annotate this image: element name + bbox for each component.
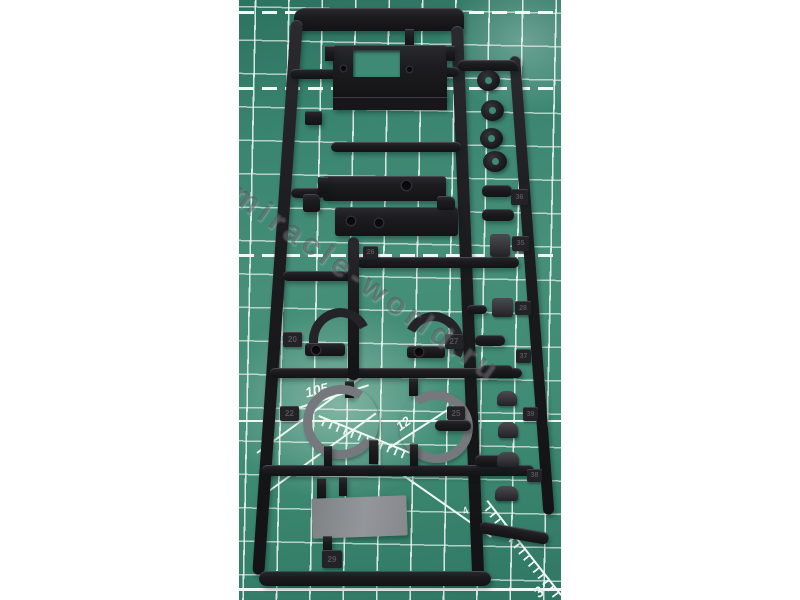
sprue-top-label-bar: [294, 8, 464, 31]
photo-of-sprue-on-cutting-mat: 105 12 4 3: [239, 0, 561, 600]
part-small-square: [305, 111, 322, 125]
part-mid-bracket-upper: [323, 176, 446, 201]
part-number-tag: 38: [527, 469, 542, 482]
tag-text: 38: [531, 472, 539, 479]
part-number-tag: 29: [322, 550, 342, 568]
part-hole: [312, 346, 320, 354]
part-top-bracket-opening: [353, 50, 400, 77]
sprue-bottom-bar: [259, 571, 491, 586]
part-washer: [477, 70, 500, 91]
part-number-tag: 36: [511, 189, 528, 205]
part-hole: [407, 67, 412, 72]
part-c-clip: [495, 486, 518, 501]
part-washer: [483, 151, 507, 172]
tag-text: 26: [367, 249, 375, 256]
pillarboxed-photo-canvas: 105 12 4 3: [0, 0, 800, 600]
part-hole: [341, 66, 346, 71]
tag-text: 28: [519, 305, 527, 312]
part-grey-plate: [311, 495, 407, 538]
sprue-rung: [357, 257, 519, 268]
part-hole: [415, 348, 423, 356]
part-washer: [481, 100, 504, 121]
part-clip: [492, 298, 513, 317]
sprue-stub: [369, 440, 378, 464]
tag-text: 25: [452, 409, 461, 418]
tag-text: 22: [285, 409, 294, 418]
tag-text: 36: [516, 194, 524, 201]
part-hole: [347, 217, 355, 225]
sprue-pin: [435, 420, 471, 431]
tag-text: 29: [328, 555, 337, 564]
part-c-clip: [497, 452, 519, 467]
part-number-tag: 28: [515, 301, 531, 315]
part-hook: [437, 196, 455, 210]
sprue-rung: [467, 305, 487, 314]
part-arm-left-foot: [305, 343, 345, 356]
sprue-stub: [339, 477, 347, 496]
sprue-stub: [410, 444, 418, 466]
part-number-tag: 20: [283, 332, 302, 347]
part-number-tag: 37: [516, 349, 531, 363]
tag-text: 37: [520, 353, 528, 360]
part-top-bracket-lip: [333, 97, 447, 110]
sprue-stub: [324, 446, 332, 466]
part-hole: [375, 219, 383, 227]
sprue-stub: [323, 536, 332, 551]
sprue-stub: [317, 478, 326, 499]
tag-text: 20: [288, 335, 297, 344]
part-pin: [482, 209, 514, 221]
part-clip: [490, 234, 510, 257]
part-number-tag: 25: [447, 406, 465, 420]
part-number-tag: 22: [280, 406, 299, 421]
part-c-clip: [498, 422, 518, 438]
part-pin: [482, 185, 512, 197]
part-hook: [446, 46, 455, 61]
part-hole: [402, 181, 411, 190]
part-number-tag: 26: [363, 246, 378, 259]
part-washer: [480, 128, 503, 149]
part-hook: [318, 177, 328, 194]
mat-major-line: [239, 588, 561, 591]
part-small-hook: [303, 194, 320, 212]
part-hook: [325, 46, 334, 61]
sprue-rung: [331, 142, 461, 152]
part-number-tag: 35: [512, 236, 529, 251]
sprue-stub: [409, 378, 418, 396]
tag-text: 35: [517, 240, 525, 247]
